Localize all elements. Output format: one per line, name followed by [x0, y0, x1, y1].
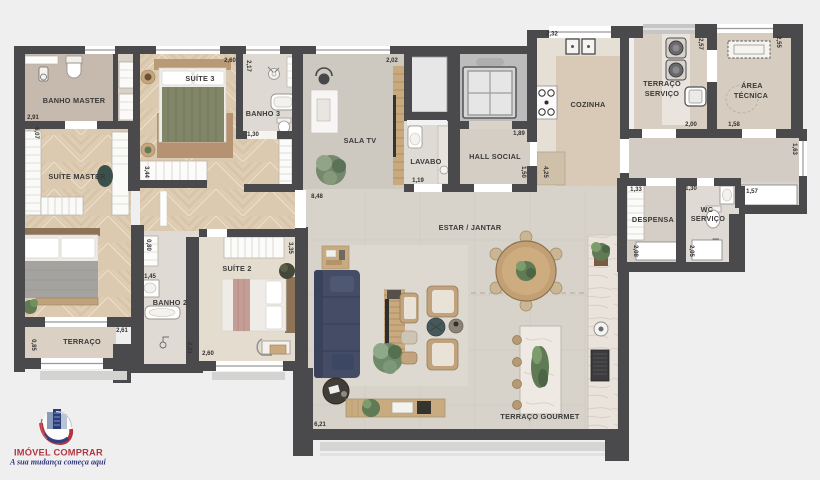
svg-text:2,60: 2,60 — [202, 351, 214, 357]
svg-text:2,02: 2,02 — [386, 58, 398, 64]
svg-text:2,61: 2,61 — [116, 328, 128, 334]
svg-text:DESPENSA: DESPENSA — [632, 215, 675, 224]
svg-text:1,89: 1,89 — [513, 131, 525, 137]
svg-text:2,05: 2,05 — [688, 245, 694, 257]
svg-text:3,35: 3,35 — [287, 242, 293, 254]
svg-text:2,55: 2,55 — [775, 36, 781, 48]
svg-text:2,17: 2,17 — [245, 60, 251, 72]
svg-text:1,50: 1,50 — [520, 166, 526, 178]
svg-text:1,33: 1,33 — [630, 187, 642, 193]
svg-text:A sua mudança começa aqui: A sua mudança começa aqui — [9, 458, 107, 467]
svg-text:0,85: 0,85 — [30, 339, 36, 351]
svg-text:2,91: 2,91 — [27, 115, 39, 121]
svg-text:TERRAÇO: TERRAÇO — [63, 337, 101, 346]
svg-text:BANHO MASTER: BANHO MASTER — [43, 96, 106, 105]
svg-text:1,45: 1,45 — [144, 274, 156, 280]
svg-text:TERRAÇO GOURMET: TERRAÇO GOURMET — [500, 412, 579, 421]
svg-text:2,00: 2,00 — [685, 122, 697, 128]
svg-text:SUÍTE MASTER: SUÍTE MASTER — [48, 172, 106, 181]
svg-text:6,07: 6,07 — [33, 127, 39, 139]
svg-text:8,48: 8,48 — [311, 194, 323, 200]
svg-text:2,08: 2,08 — [632, 245, 638, 257]
svg-text:WC: WC — [701, 205, 714, 214]
svg-text:2,57: 2,57 — [697, 38, 703, 50]
svg-text:0,80: 0,80 — [145, 239, 151, 251]
svg-text:2,32: 2,32 — [546, 32, 558, 38]
svg-text:3,44: 3,44 — [143, 166, 149, 178]
svg-text:SALA TV: SALA TV — [344, 136, 377, 145]
svg-text:BANHO 2: BANHO 2 — [153, 298, 188, 307]
svg-text:TÉCNICA: TÉCNICA — [734, 91, 769, 100]
svg-text:SERVIÇO: SERVIÇO — [645, 89, 680, 98]
svg-text:ÁREA: ÁREA — [741, 81, 763, 90]
svg-text:IMÓVEL COMPRAR: IMÓVEL COMPRAR — [14, 447, 103, 458]
svg-text:SERVIÇO: SERVIÇO — [691, 214, 726, 223]
svg-text:1,63: 1,63 — [791, 143, 797, 155]
svg-text:COZINHA: COZINHA — [571, 100, 606, 109]
svg-text:2,60: 2,60 — [224, 58, 236, 64]
svg-text:1,19: 1,19 — [412, 178, 424, 184]
svg-text:6,21: 6,21 — [314, 422, 326, 428]
svg-text:1,30: 1,30 — [685, 186, 697, 192]
svg-text:1,58: 1,58 — [728, 122, 740, 128]
svg-text:ESTAR / JANTAR: ESTAR / JANTAR — [439, 223, 502, 232]
svg-text:TERRAÇO: TERRAÇO — [643, 79, 681, 88]
svg-text:2,31: 2,31 — [186, 342, 192, 354]
svg-text:HALL SOCIAL: HALL SOCIAL — [469, 152, 521, 161]
svg-text:SUÍTE 3: SUÍTE 3 — [185, 74, 214, 83]
svg-text:SUÍTE 2: SUÍTE 2 — [222, 264, 251, 273]
svg-text:4,25: 4,25 — [542, 166, 548, 178]
svg-text:LAVABO: LAVABO — [410, 157, 441, 166]
svg-text:BANHO 3: BANHO 3 — [246, 109, 281, 118]
svg-text:1,57: 1,57 — [746, 189, 758, 195]
svg-text:1,30: 1,30 — [247, 132, 259, 138]
